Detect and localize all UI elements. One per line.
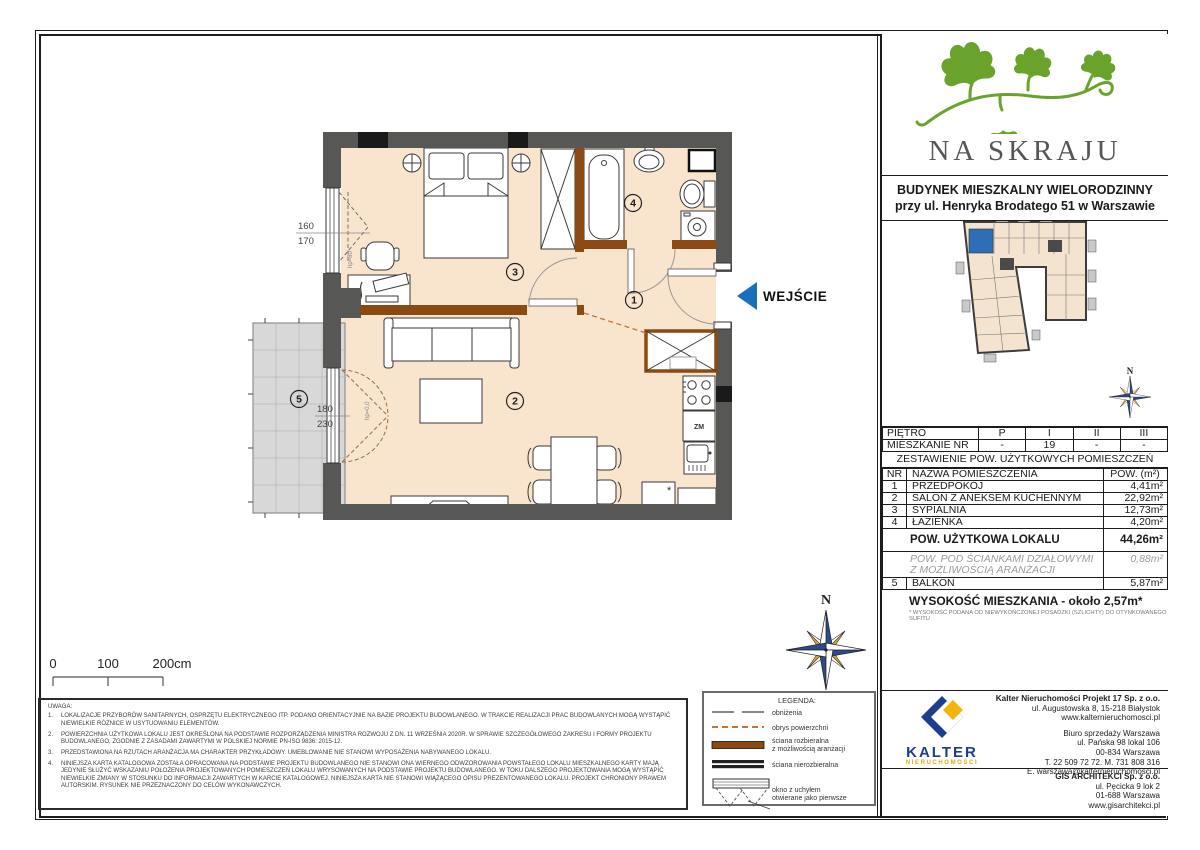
removable-wall-symbol (710, 739, 772, 754)
table-row: 4 ŁAZIENKA 4,20m² (883, 517, 1168, 529)
siteplan-core (1048, 240, 1062, 252)
wardrobe (541, 149, 575, 249)
siteplan-graphic: N (882, 221, 1168, 427)
floor-label: PIĘTRO (883, 428, 979, 440)
total-area-row: POW. UŻYTKOWA LOKALU 44,26m² (883, 529, 1168, 552)
kalter-address: Kalter Nieruchomości Projekt 17 Sp. z o.… (996, 694, 1160, 777)
apartment-label: MIESZKANIE NR (883, 440, 979, 452)
developer-block: KALTER nieruchomości Kalter Nieruchomośc… (882, 690, 1168, 768)
washing-machine-icon (681, 211, 715, 242)
room-label-bedroom: 3 (512, 267, 518, 279)
legend-box: LEGENDA: obniżenia obrys powierzchni ści… (702, 691, 876, 806)
building-title-line2: przy ul. Henryka Brodatego 51 w Warszawi… (882, 198, 1168, 214)
svg-text:100: 100 (97, 656, 119, 671)
table-row: 2 SALON Z ANEKSEM KUCHENNYM 22,92m² (883, 493, 1168, 505)
apartment-number: 19 (1026, 440, 1073, 452)
apartment-row: MIESZKANIE NR - 19 - - (883, 440, 1168, 452)
note-item: 3. PRZEDSTAWIONA NA RZUTACH ARANŻACJA MA… (48, 750, 678, 757)
legend-title: LEGENDA: (778, 697, 868, 705)
legend-item-fixed-wall: ściana nierozbieralna (710, 758, 868, 773)
room-label-living: 2 (512, 396, 518, 408)
siteplan-north-label: N (1127, 366, 1134, 376)
svg-text:200cm: 200cm (152, 656, 191, 671)
balconydoor-parapet-height: hp=0,0 (365, 401, 371, 420)
scale-bar: 0 100 200cm (49, 656, 191, 686)
room-label-balcony: 5 (296, 394, 302, 406)
kalter-logo: KALTER nieruchomości (894, 695, 990, 766)
floor-table: PIĘTRO P I II III MIESZKANIE NR - 19 - - (882, 427, 1168, 451)
gis-address: GIS ARCHITEKCI Sp. z o.o. ul. Pęcicka 9 … (1055, 772, 1160, 810)
lowering-symbol (710, 708, 772, 719)
bathtub-icon (584, 149, 624, 246)
room-label-hall: 1 (631, 295, 637, 307)
area-table-title: ZESTAWIENIE POW. UŻYTKOWYCH POMIESZCZEŃ (882, 451, 1168, 468)
kalter-diamond-icon (904, 695, 980, 741)
table-row: 1 PRZEDPOKÓJ 4,41m² (883, 481, 1168, 493)
project-name: NA SKRAJU (882, 135, 1168, 168)
legend-item-removable-wall: ściana rozbieralna z możliwością aranżac… (710, 738, 868, 754)
window-symbol (710, 777, 772, 813)
info-panel: NA SKRAJU BUDYNEK MIESZKALNY WIELORODZIN… (880, 34, 1168, 816)
floor-row: PIĘTRO P I II III (883, 428, 1168, 440)
floorplan-drawing: 160 170 180 230 hp=80 hp=0,0 ZM * 1 2 3 … (40, 36, 876, 694)
rooms-table: NR NAZWA POMIESZCZENIA POW. (m²) 1 PRZED… (882, 468, 1168, 590)
panel-divider-line (877, 34, 878, 816)
compass-rose: N (786, 593, 866, 690)
apartment-height: WYSOKOŚĆ MIESZKANIA - około 2,57m* * WYS… (882, 586, 1168, 690)
svg-text:230: 230 (317, 419, 333, 430)
legend-item-outline: obrys powierzchni (710, 723, 868, 734)
shaft (689, 150, 715, 171)
entrance-arrow-icon (737, 282, 757, 310)
siteplan-section: N (882, 221, 1168, 427)
note-item: 2. POWIERZCHNIA UŻYTKOWA LOKALU JEST OKR… (48, 732, 678, 747)
legend-item-lowering: obniżenia (710, 708, 868, 719)
notes-box: UWAGA: 1. LOKALIZACJE PRZYBORÓW SANITARN… (38, 698, 688, 810)
siteplan-core (1000, 258, 1014, 270)
siteplan-unit-highlight (969, 229, 993, 253)
fridge-mark: * (667, 485, 672, 497)
notes-title: UWAGA: (48, 704, 678, 711)
kalter-brand: KALTER (894, 746, 990, 760)
rooms-header: NR NAZWA POMIESZCZENIA POW. (m²) (883, 469, 1168, 481)
note-item: 1. LOKALIZACJE PRZYBORÓW SANITARNYCH, OS… (48, 713, 678, 728)
architect-block: GIS ARCHITEKCI Sp. z o.o. ul. Pęcicka 9 … (882, 768, 1168, 816)
window-parapet-height: hp=80 (348, 250, 354, 268)
sofa (384, 318, 519, 368)
svg-text:0: 0 (49, 656, 56, 671)
toilet-icon (680, 180, 715, 208)
table-row: 3 SYPIALNIA 12,73m² (883, 505, 1168, 517)
outline-symbol (710, 723, 772, 734)
building-title-line1: BUDYNEK MIESZKALNY WIELORODZINNY (882, 182, 1168, 198)
room-label-bathroom: 4 (630, 198, 636, 210)
dishwasher-label: ZM (694, 424, 704, 431)
entrance-marker: WEJŚCIE (737, 282, 827, 310)
hall-closet (646, 331, 716, 371)
note-item: 4. NINIEJSZA KARTA KATALOGOWA ZOSTAŁA OP… (48, 761, 678, 791)
partition-area-row: POW. POD ŚCIANKAMI DZIAŁOWYMI Z MOŻLIWOŚ… (883, 552, 1168, 578)
project-logo: NA SKRAJU (882, 34, 1168, 175)
coffee-table (420, 379, 482, 423)
entrance-label: WEJŚCIE (763, 289, 827, 304)
building-title: BUDYNEK MIESZKALNY WIELORODZINNY przy ul… (882, 175, 1168, 221)
kalter-brand-sub: nieruchomości (894, 760, 990, 766)
svg-text:180: 180 (317, 404, 333, 415)
ivy-logo-graphic (910, 34, 1140, 134)
height-footnote: * WYSOKOŚĆ PODANA OD NIEWYKOŃCZONEJ POSA… (909, 610, 1168, 622)
bed (424, 148, 508, 258)
height-text: WYSOKOŚĆ MIESZKANIA - około 2,57m* (909, 594, 1168, 608)
fixed-wall-symbol (710, 758, 772, 773)
svg-text:170: 170 (298, 236, 314, 247)
legend-item-window: okno z uchyłem otwierane jako pierwsze (710, 777, 868, 813)
compass-north-label: N (821, 593, 831, 608)
svg-text:160: 160 (298, 221, 314, 232)
